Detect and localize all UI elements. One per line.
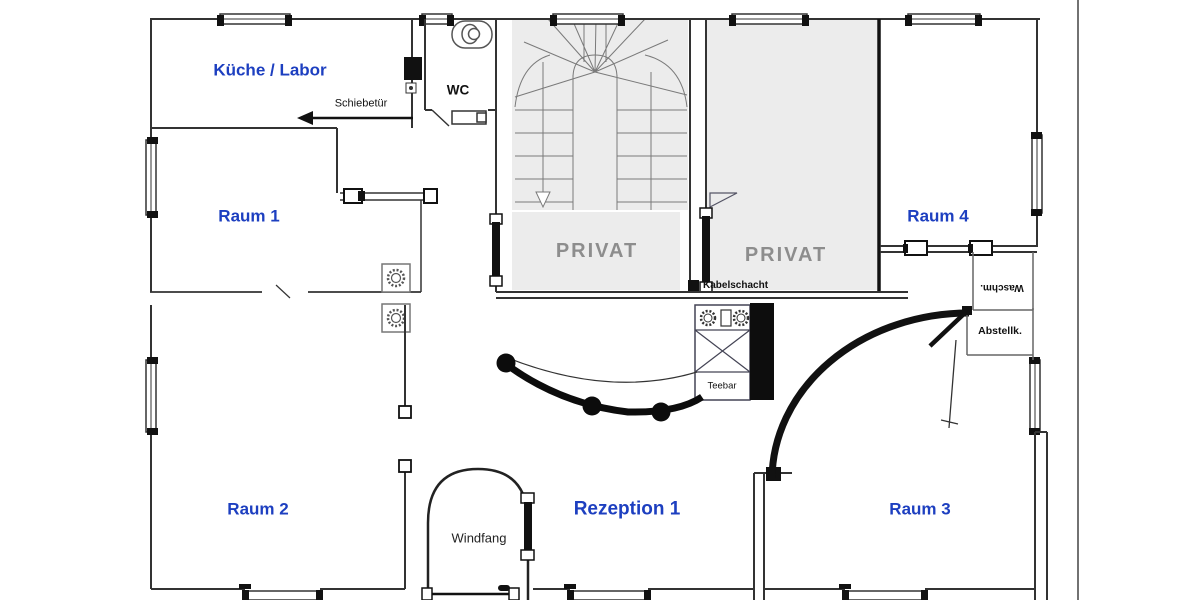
vent-icon — [382, 264, 410, 292]
window — [239, 584, 323, 600]
window — [729, 14, 809, 26]
room-label-raum4: Raum 4 — [907, 208, 968, 225]
reception-desk — [497, 354, 703, 422]
annotation-waschmaschine: Waschm. — [980, 282, 1024, 292]
pocket-door — [404, 57, 422, 93]
annotation-kabelschacht: Kabelschacht — [703, 281, 768, 291]
room-label-privat-left: PRIVAT — [556, 241, 638, 261]
room-label-kueche-labor: Küche / Labor — [213, 62, 326, 79]
wc-door — [432, 110, 486, 126]
toilet-icon — [452, 21, 492, 48]
counter-black-block — [750, 303, 774, 400]
raum3-east-wall — [1035, 432, 1047, 600]
window — [550, 14, 625, 26]
room-label-privat-right: PRIVAT — [745, 245, 827, 265]
raum3-divider — [754, 473, 792, 600]
kabelschacht-shaft — [688, 280, 699, 291]
annotation-abstellkammer: Abstellk. — [978, 326, 1022, 337]
room-label-windfang: Windfang — [452, 532, 507, 545]
room-label-raum3: Raum 3 — [889, 501, 950, 518]
window — [564, 584, 651, 600]
raum2-door — [399, 406, 411, 472]
window — [839, 584, 928, 600]
sliding-door-element — [344, 189, 437, 203]
room-label-raum1: Raum 1 — [218, 208, 279, 225]
privat-left-door — [490, 214, 502, 286]
window — [1029, 357, 1040, 435]
annotation-schiebetuer: Schiebetür — [335, 99, 388, 110]
window — [1031, 132, 1042, 216]
window — [217, 14, 292, 26]
room-label-raum2: Raum 2 — [227, 501, 288, 518]
windows-bottom — [239, 584, 928, 600]
sliding-door-arrow — [297, 111, 413, 125]
raum3-door — [941, 340, 958, 428]
floor-plan: Küche / Labor Schiebetür WC PRIVAT PRIVA… — [0, 0, 1200, 600]
room-label-rezeption1: Rezeption 1 — [574, 500, 681, 519]
utility-rooms — [967, 252, 1033, 360]
window — [146, 137, 158, 218]
annotation-teebar: Teebar — [707, 381, 736, 391]
room-label-wc: WC — [447, 83, 470, 97]
entrance-door — [422, 585, 519, 600]
window — [146, 357, 158, 435]
window — [905, 14, 982, 26]
wall-junction-block — [962, 306, 972, 315]
